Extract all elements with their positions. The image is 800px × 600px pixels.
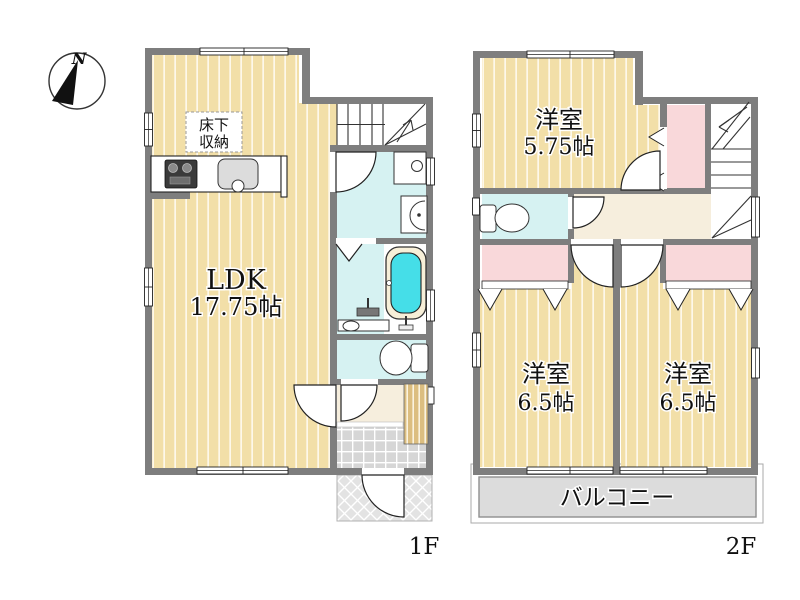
floorplan-image: N <box>0 0 800 600</box>
bedroom-left-size-label: 6.5帖 <box>518 391 575 416</box>
window-2f-right-upper <box>752 197 760 237</box>
bathtub-icon <box>386 247 426 330</box>
window-2f-balcony-right <box>620 467 707 474</box>
bedroom-right-name-label: 洋室 <box>664 360 712 388</box>
compass-north-label: N <box>71 49 88 68</box>
closet-top <box>667 105 705 189</box>
floor2-label: 2F <box>726 534 757 560</box>
floor-storage-box: 床下 収納 <box>186 112 242 152</box>
floor1-plan: 床下 収納 <box>145 48 440 560</box>
ldk-size-label: 17.75帖 <box>190 293 283 321</box>
gas-stove-icon <box>165 160 197 188</box>
closet-right <box>666 245 751 282</box>
bedroom-top-size-label: 5.75帖 <box>524 135 595 160</box>
bedroom-top-name-label: 洋室 <box>535 106 583 134</box>
bedroom-right-size-label: 6.5帖 <box>660 391 717 416</box>
window-bottom <box>197 467 288 474</box>
floor1-label: 1F <box>409 534 440 560</box>
closet-left <box>482 245 568 282</box>
window-left-lower <box>145 268 153 306</box>
window-2f-top <box>527 51 614 58</box>
washbasin-icon <box>401 196 427 233</box>
kitchen-sink-icon <box>218 159 258 192</box>
window-2f-right-lower <box>752 348 760 378</box>
window-2f-left-lower <box>473 333 481 367</box>
window-left-upper <box>145 113 153 146</box>
bedroom-left-name-label: 洋室 <box>522 360 570 388</box>
window-2f-toilet <box>473 198 480 215</box>
floor-storage-label-1: 床下 <box>199 116 229 134</box>
shoe-cabinet <box>404 384 428 444</box>
balcony-label: バルコニー <box>560 485 675 511</box>
window-2f-balcony-left <box>527 467 613 474</box>
window-2f-left-upper <box>473 114 481 147</box>
washing-machine-icon <box>394 152 426 184</box>
balcony: バルコニー <box>479 477 756 517</box>
floor-storage-label-2: 収納 <box>199 133 229 151</box>
toilet-icon-2f <box>480 204 529 232</box>
kitchen-counter <box>151 156 287 197</box>
toilet-icon-1f <box>380 341 428 375</box>
ldk-name-label: LDK <box>206 265 267 296</box>
floorplan-page: N <box>0 0 800 600</box>
floor2-plan: バルコニー 洋室 5.75帖 洋室 6.5帖 洋室 6.5帖 2F <box>471 51 763 560</box>
window-bathroom <box>427 290 435 321</box>
compass: N <box>49 49 105 109</box>
entrance-step <box>337 422 403 427</box>
window-top <box>200 48 288 55</box>
window-washroom <box>427 158 435 185</box>
